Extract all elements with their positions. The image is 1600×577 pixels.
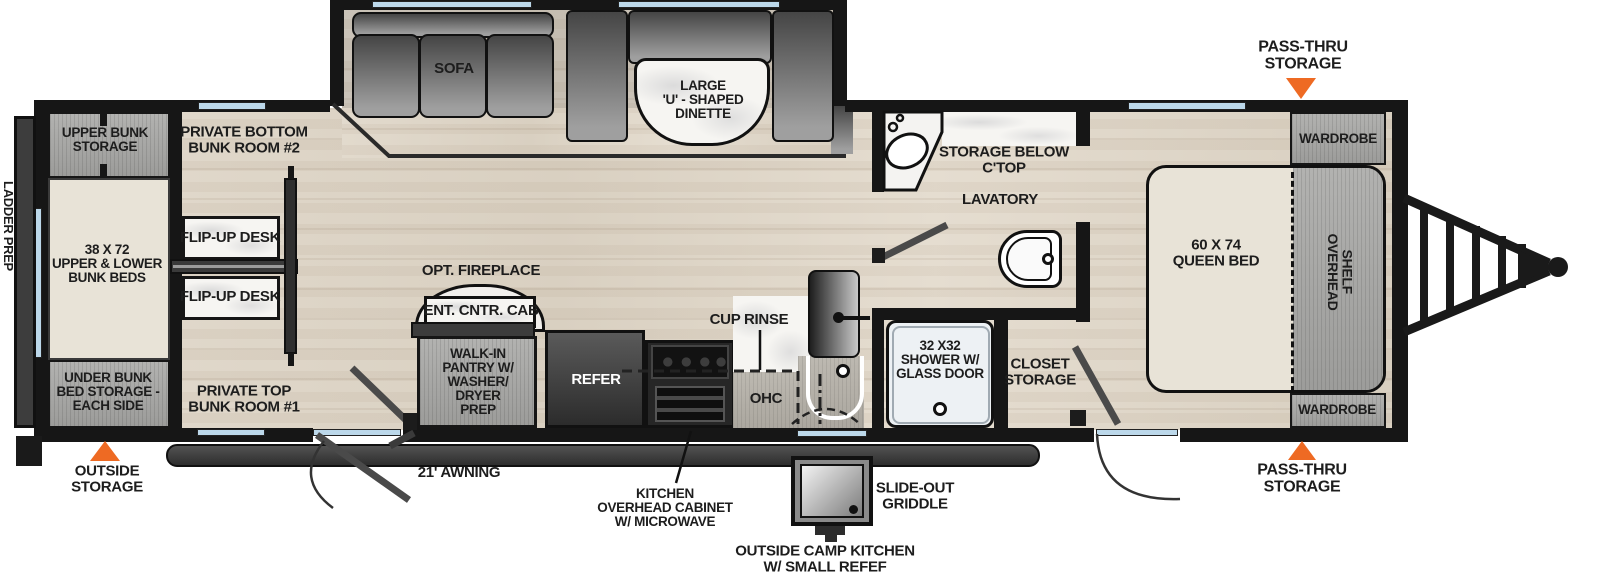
window [797, 430, 867, 437]
shower-label: 32 X32 SHOWER W/ GLASS DOOR [896, 339, 984, 381]
oven-door [655, 386, 725, 422]
awning-bar [166, 444, 1040, 467]
wardrobe-label-bottom: WARDROBE [1298, 403, 1376, 417]
sofa-cushion [352, 34, 420, 118]
opt-fireplace-label: OPT. FIREPLACE [422, 263, 540, 279]
queen-bed-label: 60 X 74 QUEEN BED [1173, 237, 1259, 268]
slideout-end-cap [831, 106, 853, 154]
flip-up-desk-label-1: FLIP-UP DESK [180, 230, 280, 246]
dinette-bench-top [628, 10, 772, 64]
top-wall-right [845, 100, 1408, 112]
window [1128, 102, 1246, 110]
stove-burners [651, 345, 729, 379]
slideout-wall-left [330, 0, 344, 106]
slideout-window [372, 1, 532, 8]
pass-thru-arrow-top [1286, 78, 1316, 99]
partition-cap [288, 166, 294, 179]
bunk-beds-label: 38 X 72 UPPER & LOWER BUNK BEDS [52, 243, 162, 285]
bedroom-door-hinge [1070, 410, 1086, 426]
entry-door-threshold [313, 429, 401, 436]
private-bottom-bunk-room-label: PRIVATE BOTTOM BUNK ROOM #2 [180, 124, 307, 155]
ladder-prep-bar [14, 116, 36, 428]
bottom-wall-left [34, 428, 313, 442]
flip-up-desk-label-2: FLIP-UP DESK [180, 289, 280, 305]
slideout-window [618, 1, 780, 8]
sink-front-outline [806, 356, 864, 420]
bath-wall-right-upper [1076, 108, 1090, 146]
bottom-wall-middle [403, 428, 1094, 442]
rv-floorplan: PASS-THRU STORAGE WARDROBE 60 X 74 QUEEN… [0, 0, 1600, 577]
slide-out-griddle-label: SLIDE-OUT GRIDDLE [876, 480, 954, 511]
lavatory-label: LAVATORY [962, 192, 1038, 208]
slideout-wall-right [833, 0, 847, 110]
rear-bumper [16, 436, 42, 466]
pass-thru-storage-label-bottom: PASS-THRU STORAGE [1257, 462, 1346, 495]
entry-door-threshold [1096, 429, 1178, 436]
dinette-label: LARGE 'U' - SHAPED DINETTE [663, 79, 744, 121]
private-top-bunk-room-label: PRIVATE TOP BUNK ROOM #1 [188, 383, 299, 414]
hitch-apex [1518, 250, 1554, 284]
kitchen-overhead-cabinet-label: KITCHEN OVERHEAD CABINET W/ MICROWAVE [597, 487, 732, 529]
ohc-label: OHC [750, 391, 782, 407]
toilet-wall-right [1076, 222, 1090, 322]
sofa-cushion [486, 34, 554, 118]
entry-door-arc [1097, 434, 1180, 499]
hitch-frame [1404, 198, 1549, 332]
desk-divider-line [173, 265, 295, 268]
sofa-label: SOFA [434, 61, 474, 77]
shower-wall-top [872, 308, 1090, 320]
cabinet-handle [842, 316, 870, 320]
upper-bunk-storage-label: UPPER BUNK STORAGE [62, 126, 148, 154]
dinette-bench-right [772, 10, 834, 142]
bed-fold-line [1291, 172, 1294, 392]
toilet-flush-button [1042, 253, 1054, 265]
window [198, 102, 266, 110]
awning-label: 21' AWNING [418, 465, 501, 481]
closet-storage-label: CLOSET STORAGE [1004, 356, 1076, 387]
shower-wall-left [872, 308, 884, 428]
griddle-mount-tab [815, 526, 845, 535]
storage-divider-tick [100, 164, 107, 178]
window [197, 429, 265, 436]
pass-thru-arrow-bottom [1288, 441, 1316, 460]
partition-cap [288, 353, 294, 366]
dinette-bench-left [566, 10, 628, 142]
griddle-knob [849, 505, 858, 514]
refer-label: REFER [571, 372, 620, 388]
bunk-partition-wall [284, 178, 297, 354]
storage-divider-tick [100, 112, 107, 126]
ctop-counter [942, 112, 1076, 146]
under-bunk-storage-label: UNDER BUNK BED STORAGE - EACH SIDE [56, 371, 159, 413]
storage-below-ctop-label: STORAGE BELOW C'TOP [939, 144, 1069, 175]
ent-cntr-cab-label: ENT. CNTR. CAB [424, 303, 539, 319]
faucet [836, 364, 850, 378]
walk-in-pantry-label: WALK-IN PANTRY W/ WASHER/ DRYER PREP [442, 347, 513, 417]
top-wall-left [34, 100, 330, 112]
griddle-mount-tab [825, 535, 837, 542]
wardrobe-label-top: WARDROBE [1299, 132, 1377, 146]
bottom-wall-right [1180, 428, 1408, 442]
overhead-shelf-label: OVERHEAD SHELF [1325, 234, 1354, 311]
outside-camp-kitchen-label: OUTSIDE CAMP KITCHEN W/ SMALL REFEF [735, 543, 915, 574]
right-wall [1392, 100, 1408, 442]
hitch-ball [1548, 257, 1568, 277]
outside-storage-label: OUTSIDE STORAGE [71, 463, 143, 494]
outside-storage-arrow [90, 441, 120, 461]
shower-drain [933, 402, 947, 416]
pass-thru-storage-label-top: PASS-THRU STORAGE [1258, 39, 1347, 72]
bath-wall-left-upper [872, 108, 884, 192]
cup-rinse-label: CUP RINSE [710, 312, 789, 328]
ladder-prep-label: LADDER PREP [1, 181, 15, 271]
